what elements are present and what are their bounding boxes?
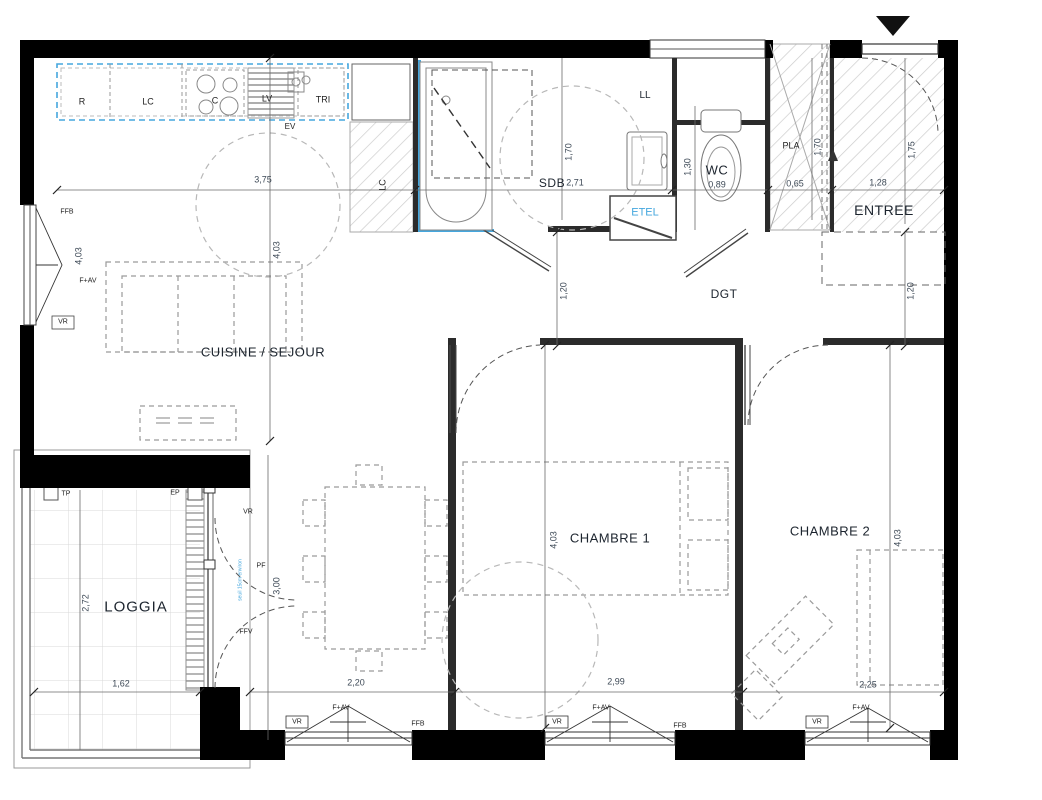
opening-label-vr-loggia: VR (243, 509, 253, 516)
opening-label-ep: EP (170, 490, 179, 497)
entrance-door (862, 44, 938, 54)
ep-fixture (188, 486, 202, 500)
opening-label-fav-west: F+AV (79, 278, 96, 285)
room-label-sdb: SDB (539, 177, 565, 189)
appliance-label-dishwasher: LV (262, 95, 272, 104)
furniture (106, 262, 943, 720)
tri-bin (298, 68, 344, 116)
dim-loggia-depth: 2,72 (82, 594, 91, 612)
dim-kitchen-width: 3,75 (254, 176, 272, 185)
room-label-loggia: LOGGIA (104, 600, 168, 615)
dim-chambre2-width: 2,25 (859, 681, 877, 690)
room-label-entree: ENTREE (854, 203, 914, 217)
appliance-label-lc: LC (142, 98, 154, 107)
opening-label-vr-w3: VR (812, 719, 822, 726)
loggia-door-swings (215, 518, 297, 688)
dining-table (303, 465, 447, 671)
floor-plan: CUISINE / SEJOUR SDB WC ENTREE DGT PLA C… (0, 0, 1042, 800)
dim-wc-height: 1,30 (684, 158, 693, 176)
dim-pla-height: 1,70 (814, 138, 823, 156)
desk-chambre2 (732, 596, 834, 720)
opening-label-tp: TP (62, 491, 71, 498)
room-label-dgt: DGT (711, 288, 738, 300)
entrance-marker-triangle (876, 16, 910, 36)
dim-sejour-window-width: 2,20 (347, 679, 365, 688)
chambre2-door (745, 345, 828, 425)
opening-label-vr-w2: VR (552, 719, 562, 726)
appliance-label-cooktop: C (212, 97, 219, 106)
opening-label-fav-w2: F+AV (592, 705, 609, 712)
sofa (106, 262, 302, 352)
entree-mat-zone (822, 232, 945, 285)
opening-label-ffb-w1: FFB (411, 721, 424, 728)
dim-sejour-height: 4,03 (273, 241, 282, 259)
dim-loggia-width: 1,62 (112, 680, 130, 689)
cooktop-outline (186, 70, 244, 116)
chambre1-door (450, 345, 540, 433)
opening-label-fav-w3: F+AV (852, 705, 869, 712)
tp-fixture (44, 486, 58, 500)
floor-plan-drawing (0, 0, 1042, 800)
opening-label-ffb-west: FFB (60, 209, 73, 216)
toilet (701, 110, 741, 132)
dim-chambre1-height: 4,03 (550, 531, 559, 549)
appliance-label-refrigerator: R (79, 98, 86, 107)
room-label-etel: ETEL (631, 208, 659, 219)
sejour-window (285, 706, 412, 745)
appliance-label-tri: TRI (316, 96, 331, 105)
room-label-chambre2: CHAMBRE 2 (790, 525, 870, 538)
dim-sejour-height-west: 4,03 (75, 247, 84, 265)
dim-chambre1-width: 2,99 (607, 678, 625, 687)
room-label-wc: WC (706, 164, 729, 177)
wc-door (684, 229, 748, 277)
chambre1-window (545, 706, 675, 745)
opening-label-ffv: FFV (239, 629, 252, 636)
chambre2-window (805, 708, 930, 745)
dim-wc-width: 0,89 (708, 181, 726, 190)
appliance-label-washing-machine: LL (639, 91, 650, 101)
appliance-label-lc-column: LC (379, 179, 388, 191)
opening-label-vr-w1: VR (292, 719, 302, 726)
dim-pf-height: 3,00 (273, 577, 282, 595)
opening-label-fav-w1: F+AV (332, 705, 349, 712)
room-label-pla: PLA (782, 142, 799, 151)
bed-chambre1 (463, 462, 728, 595)
south-windows (285, 706, 930, 745)
dim-sdb-width: 2,71 (566, 179, 584, 188)
dim-chambre2-height: 4,03 (894, 529, 903, 547)
room-label-cuisine-sejour: CUISINE / SEJOUR (201, 346, 325, 359)
seuil-annotation: seuil 15cm environ (239, 559, 244, 601)
room-label-chambre1: CHAMBRE 1 (570, 532, 650, 545)
bathtub (420, 62, 492, 230)
tv-console (140, 406, 236, 440)
bed-chambre2 (857, 550, 943, 685)
opening-label-ffb-w2: FFB (673, 723, 686, 730)
kitchen-counter (57, 64, 348, 120)
opening-label-pf: PF (257, 563, 266, 570)
dim-sdb-height: 1,70 (565, 143, 574, 161)
opening-label-vr-west: VR (58, 319, 68, 326)
dim-dgt-depth-a: 1,20 (560, 282, 569, 300)
lc-appliance (352, 64, 410, 120)
dim-entree-height: 1,75 (908, 141, 917, 159)
roller-shutter-rail (186, 490, 204, 690)
dim-dgt-depth-b: 1,20 (907, 282, 916, 300)
dim-pla-width: 0,65 (786, 180, 804, 189)
appliance-label-sink: EV (285, 123, 296, 131)
dim-entree-width: 1,28 (869, 179, 887, 188)
